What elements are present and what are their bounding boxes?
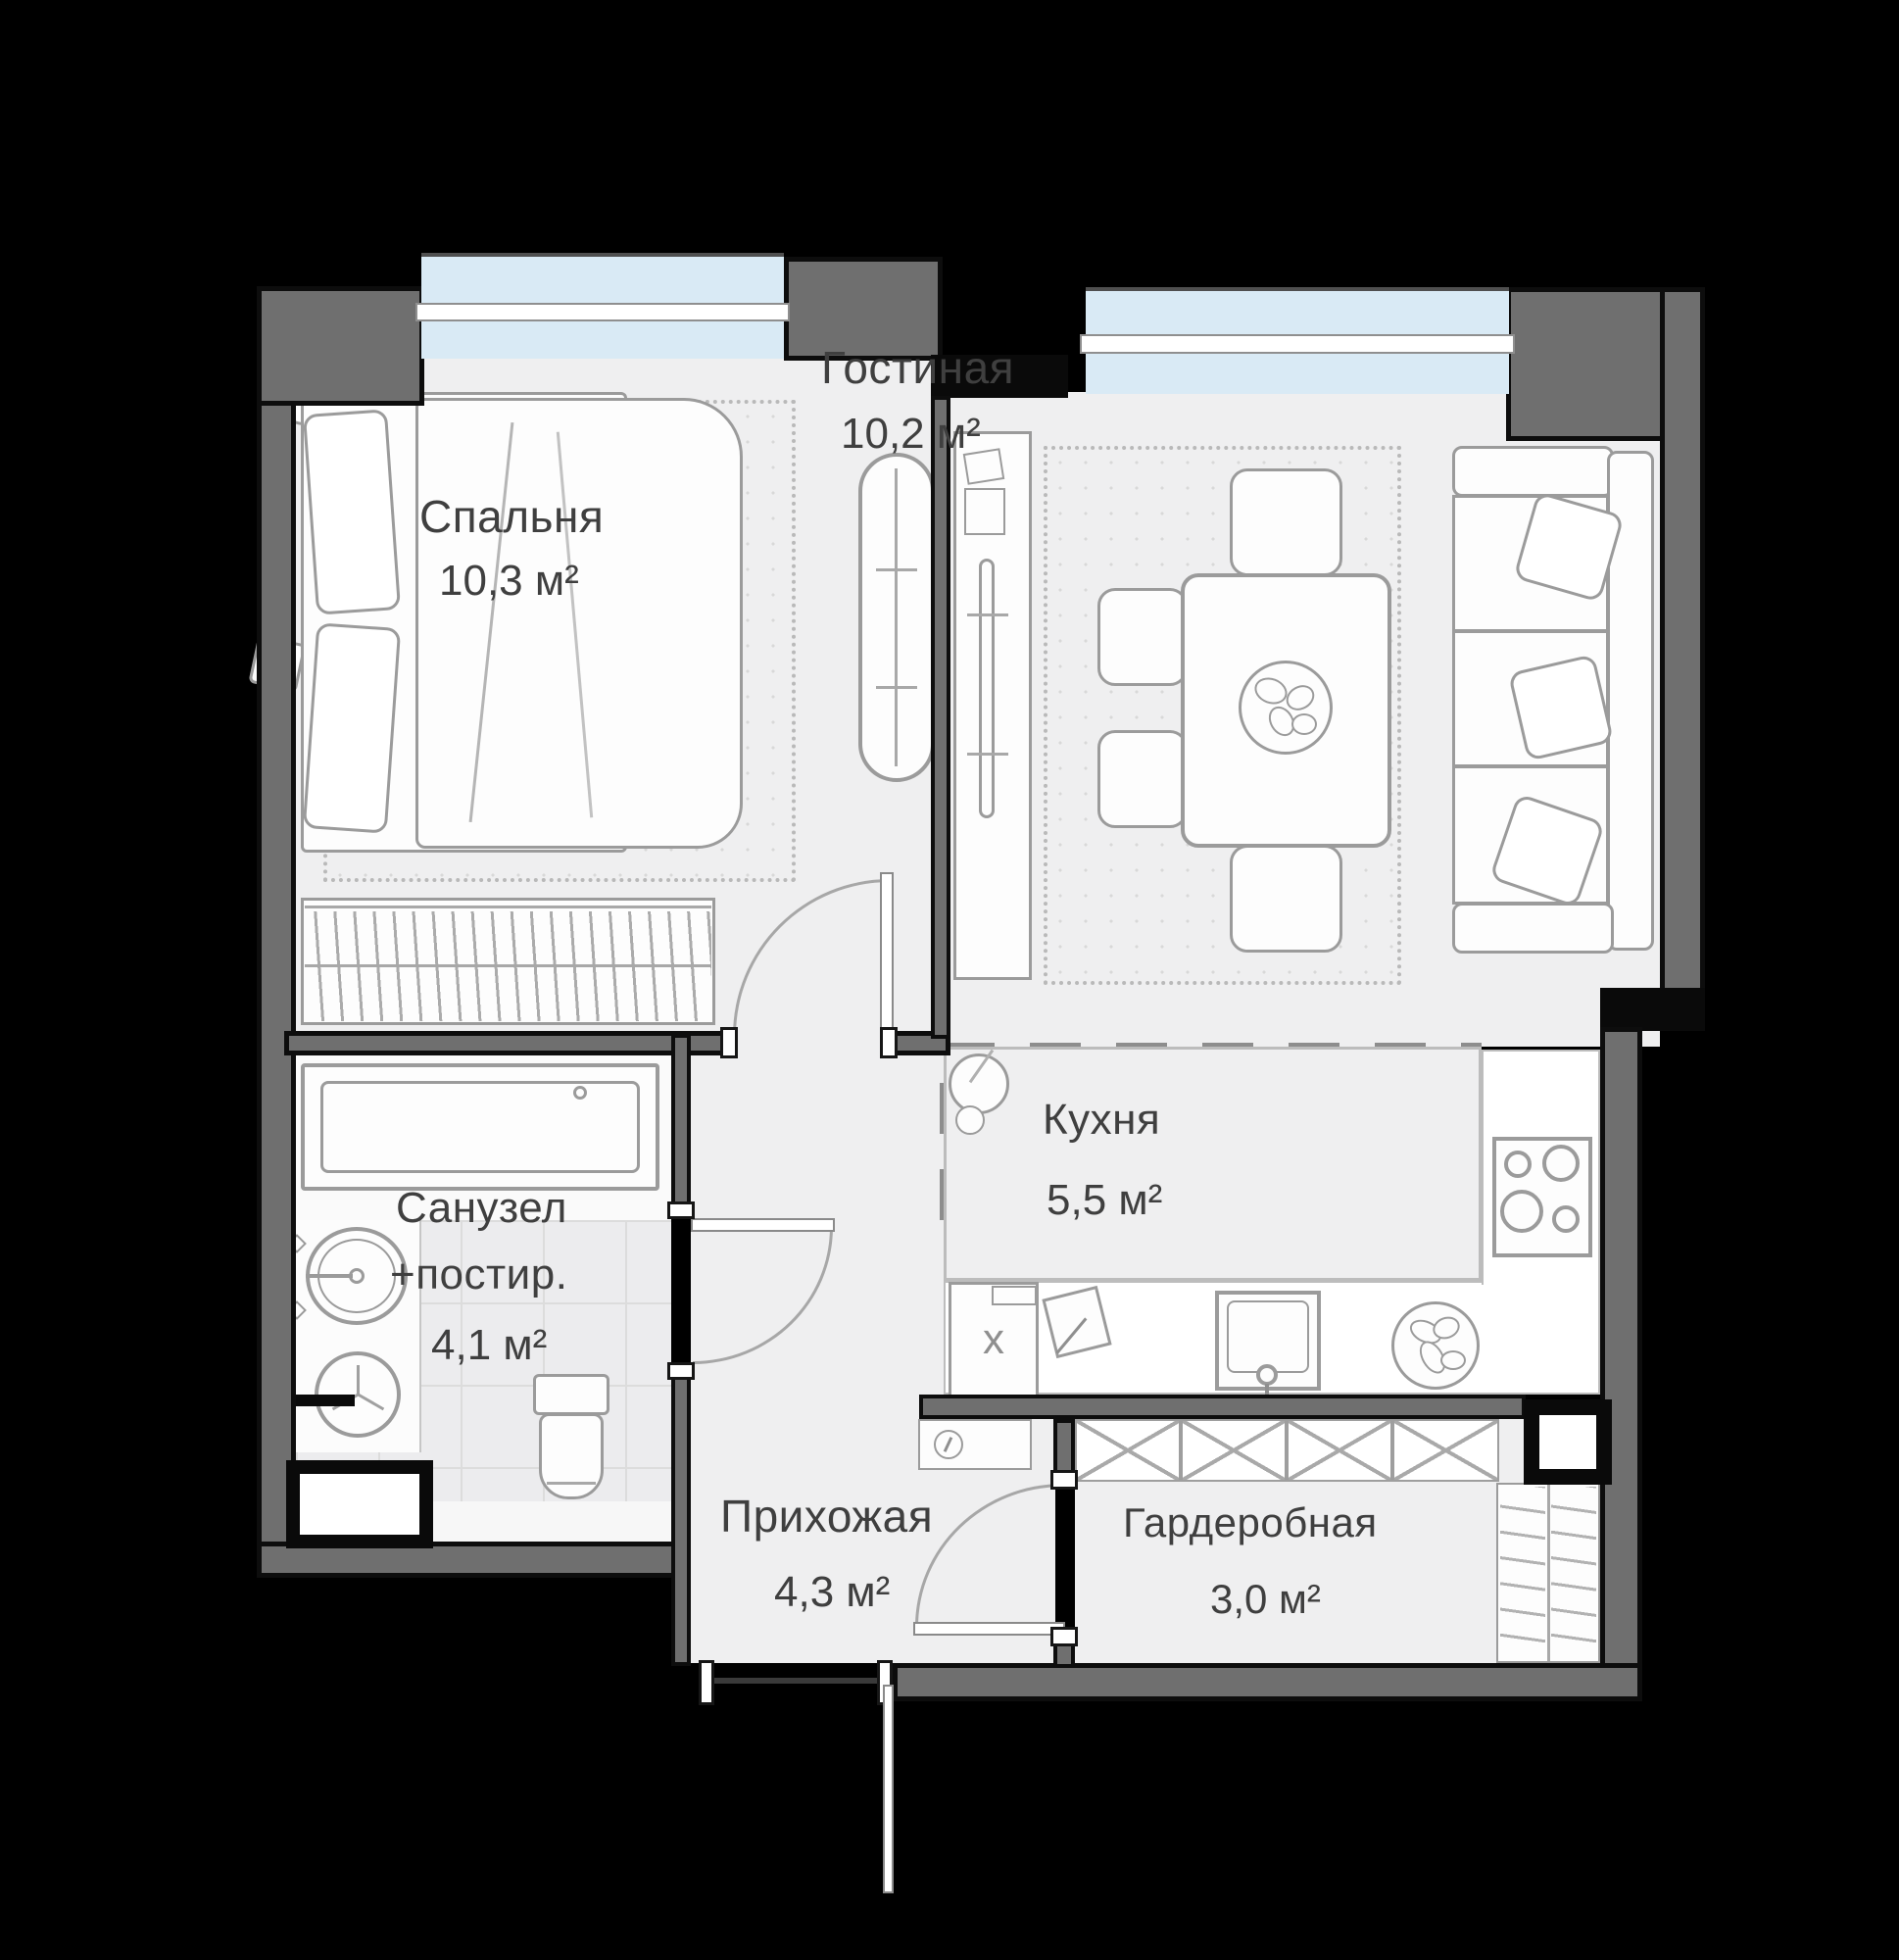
- wardrobe-x-closet: [1075, 1419, 1499, 1482]
- ironing-board-bar: [876, 686, 917, 689]
- toilet-seat-line: [547, 1482, 596, 1485]
- bed-blanket: [415, 398, 743, 849]
- kitchen-label: Кухня: [1043, 1096, 1160, 1145]
- tv-stand-box: [964, 488, 1005, 535]
- wardrobe-area: 3,0 м²: [1210, 1576, 1321, 1623]
- shaft-niche-bottom-left: [300, 1474, 419, 1535]
- burner: [1500, 1190, 1543, 1233]
- burner: [1552, 1205, 1580, 1233]
- bedroom-area: 10,3 м²: [439, 557, 579, 606]
- kitchen-area: 5,5 м²: [1047, 1176, 1162, 1225]
- bath-faucet: [306, 1274, 353, 1278]
- kitchen-sink-basin: [1227, 1300, 1309, 1373]
- shelf-lines: [1500, 1487, 1545, 1659]
- x-closet-cell: [1181, 1419, 1287, 1482]
- ironing-board-bar: [876, 568, 917, 571]
- wall-top-left-block: [257, 286, 424, 406]
- plant-icon-small: [955, 1105, 985, 1135]
- plant-icon: [949, 1053, 1009, 1114]
- burner: [1504, 1151, 1532, 1178]
- tv: [979, 559, 995, 818]
- room-kitchen-floor: [944, 1047, 1482, 1281]
- toilet-bowl: [539, 1413, 604, 1499]
- wall-left: [257, 286, 296, 1578]
- bed-pillow: [303, 409, 401, 614]
- bathroom-area: 4,1 м²: [431, 1321, 547, 1370]
- door-jamb: [667, 1201, 695, 1219]
- bathroom-threshold: [421, 1501, 671, 1545]
- shelf-lines: [1551, 1487, 1596, 1659]
- closet-rod-rail: [305, 906, 711, 908]
- bathroom-door-leaf: [691, 1218, 835, 1232]
- bed-pillow: [303, 622, 401, 833]
- tv-bracket: [967, 613, 1008, 616]
- kitchen-zone-dash-horizontal: [944, 1043, 1482, 1047]
- fruit-item: [1440, 1350, 1466, 1370]
- wall-bedroom-living-partition: [931, 396, 950, 1039]
- entrance-door-leaf: [883, 1685, 894, 1893]
- dining-chair: [1230, 845, 1342, 953]
- wall-kitchen-wardrobe: [919, 1395, 1526, 1419]
- kitchen-drawer: [992, 1286, 1037, 1305]
- living-area: 10,2 м²: [841, 410, 981, 459]
- floor-plan: х: [0, 0, 1899, 1960]
- x-closet-cell: [1392, 1419, 1499, 1482]
- dining-chair: [1230, 468, 1342, 576]
- door-jamb: [880, 1027, 898, 1058]
- living-window-sill: [1080, 334, 1515, 354]
- wardrobe-label: Гардеробная: [1123, 1499, 1378, 1546]
- entrance-jamb: [699, 1660, 714, 1705]
- hallway-area: 4,3 м²: [774, 1568, 890, 1617]
- wall-bedroom-bottom: [284, 1031, 735, 1055]
- dining-chair: [1097, 730, 1188, 828]
- wall-right-upper: [1660, 287, 1705, 1027]
- sofa-armrest: [1452, 446, 1614, 497]
- wall-bottom-right: [893, 1663, 1642, 1701]
- entrance-threshold: [714, 1678, 877, 1684]
- ironing-board-line: [895, 468, 898, 766]
- bathroom-label: Санузел: [396, 1184, 567, 1233]
- door-jamb: [1050, 1470, 1078, 1490]
- shaft-niche-right: [1539, 1415, 1596, 1469]
- door-jamb: [1050, 1627, 1078, 1646]
- living-label: Гостиная: [821, 341, 1014, 394]
- washer-spoke: [357, 1365, 360, 1395]
- bedroom-window-sill: [415, 303, 790, 321]
- bathtub-inner: [320, 1081, 640, 1173]
- bathtub-drain: [573, 1086, 587, 1100]
- burner: [1542, 1145, 1580, 1182]
- bathroom-label2: +постир.: [390, 1250, 567, 1299]
- hallway-label: Прихожая: [720, 1490, 933, 1543]
- faucet-icon: [1256, 1364, 1278, 1386]
- door-jamb: [667, 1362, 695, 1380]
- wall-bathroom-partition-lower: [671, 1369, 691, 1666]
- x-cabinet-label: х: [983, 1315, 1004, 1364]
- bedroom-label: Спальня: [419, 490, 604, 543]
- wall-stub-black: [296, 1395, 355, 1406]
- bedroom-door-leaf: [880, 872, 894, 1036]
- closet-mid-line: [305, 964, 711, 967]
- wall-right-notch: [1600, 988, 1705, 1031]
- dining-chair: [1097, 588, 1188, 686]
- wall-right-lower: [1600, 1027, 1642, 1701]
- door-jamb: [720, 1027, 738, 1058]
- x-closet-cell: [1075, 1419, 1181, 1482]
- wall-bathroom-partition-upper: [671, 1034, 691, 1212]
- plate-food: [1291, 713, 1317, 735]
- toilet-tank: [533, 1374, 609, 1415]
- wardrobe-door-leaf: [913, 1622, 1065, 1636]
- kitchen-zone-dash-vertical: [940, 1055, 944, 1220]
- shelf-divider: [1547, 1485, 1550, 1661]
- x-closet-cell: [1287, 1419, 1392, 1482]
- sofa-armrest: [1452, 903, 1614, 954]
- tv-bracket: [967, 753, 1008, 756]
